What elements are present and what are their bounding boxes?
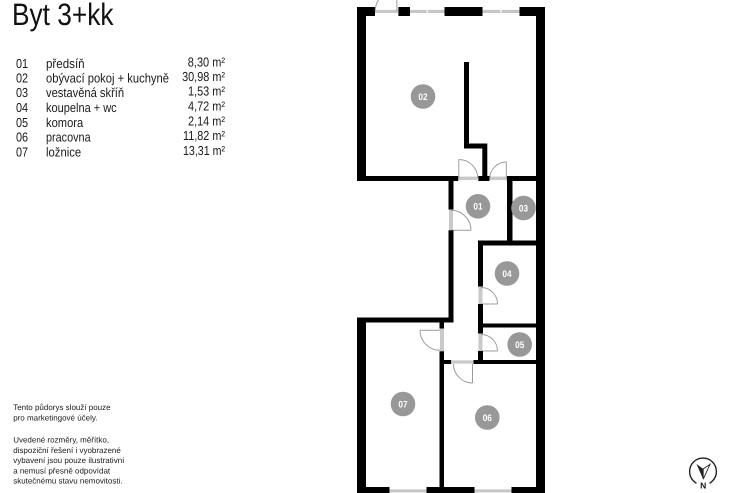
- svg-text:01: 01: [16, 56, 28, 71]
- svg-text:02: 02: [418, 92, 427, 103]
- svg-text:02: 02: [16, 71, 28, 86]
- svg-text:05: 05: [16, 115, 28, 130]
- svg-text:04: 04: [16, 100, 28, 115]
- svg-text:04: 04: [502, 269, 512, 280]
- svg-text:06: 06: [16, 130, 28, 145]
- svg-text:vybavení jsou pouze ilustrativ: vybavení jsou pouze ilustrativní: [13, 456, 125, 465]
- svg-text:vestavěná skříň: vestavěná skříň: [46, 85, 124, 100]
- svg-text:skutečnému stavu nemovitosti.: skutečnému stavu nemovitosti.: [13, 477, 122, 486]
- svg-text:Tento půdorys slouží pouze: Tento půdorys slouží pouze: [13, 403, 111, 412]
- svg-text:13,31 m²: 13,31 m²: [183, 143, 226, 158]
- svg-text:obývací pokoj + kuchyně: obývací pokoj + kuchyně: [46, 71, 169, 86]
- svg-text:05: 05: [515, 340, 525, 351]
- svg-text:N: N: [700, 481, 706, 491]
- svg-text:Byt 3+kk: Byt 3+kk: [12, 0, 114, 32]
- svg-text:30,98 m²: 30,98 m²: [182, 69, 225, 84]
- svg-text:2,14 m²: 2,14 m²: [188, 114, 226, 129]
- svg-text:dispoziční řešení i vyobrazené: dispoziční řešení i vyobrazené: [13, 446, 121, 455]
- svg-text:a nemusí přesně odpovídat: a nemusí přesně odpovídat: [13, 466, 111, 475]
- svg-text:koupelna + wc: koupelna + wc: [46, 100, 117, 115]
- svg-text:07: 07: [398, 399, 407, 410]
- svg-text:07: 07: [16, 145, 28, 160]
- svg-text:Uvedené rozměry, měřítko,: Uvedené rozměry, měřítko,: [13, 436, 109, 445]
- svg-text:pracovna: pracovna: [46, 130, 91, 145]
- svg-text:03: 03: [16, 85, 28, 100]
- svg-text:ložnice: ložnice: [46, 145, 81, 160]
- svg-text:06: 06: [483, 413, 492, 424]
- svg-text:03: 03: [519, 203, 528, 214]
- svg-text:předsíň: předsíň: [46, 56, 85, 71]
- svg-text:pro marketingové účely.: pro marketingové účely.: [13, 414, 97, 423]
- svg-text:01: 01: [473, 202, 483, 213]
- svg-text:1,53 m²: 1,53 m²: [188, 84, 226, 99]
- svg-text:8,30 m²: 8,30 m²: [188, 55, 226, 70]
- svg-text:11,82 m²: 11,82 m²: [183, 128, 226, 143]
- svg-text:komora: komora: [46, 115, 84, 130]
- svg-text:4,72 m²: 4,72 m²: [188, 99, 226, 114]
